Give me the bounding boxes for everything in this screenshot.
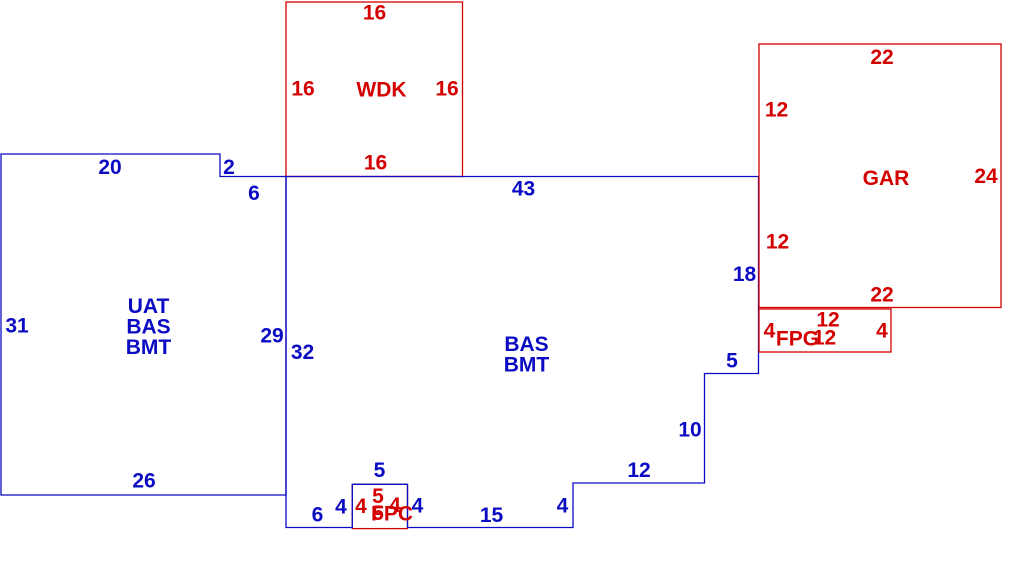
svg-text:4: 4	[557, 495, 569, 518]
svg-text:26: 26	[132, 470, 155, 493]
svg-text:22: 22	[870, 284, 893, 307]
svg-text:16: 16	[291, 78, 314, 101]
svg-text:4: 4	[876, 320, 888, 343]
svg-text:16: 16	[364, 152, 387, 175]
svg-text:BMT: BMT	[504, 354, 550, 377]
svg-text:5: 5	[726, 350, 738, 373]
svg-text:12: 12	[627, 459, 650, 482]
svg-text:15: 15	[480, 504, 504, 527]
svg-text:6: 6	[248, 182, 260, 205]
svg-text:32: 32	[291, 341, 314, 364]
svg-text:20: 20	[98, 156, 121, 179]
svg-text:29: 29	[260, 325, 283, 348]
svg-text:18: 18	[733, 263, 757, 286]
svg-text:12: 12	[765, 99, 788, 122]
svg-text:10: 10	[678, 419, 701, 442]
svg-text:16: 16	[363, 2, 386, 25]
svg-text:GAR: GAR	[863, 167, 910, 190]
svg-text:22: 22	[870, 46, 893, 69]
svg-text:43: 43	[512, 178, 535, 201]
svg-text:16: 16	[435, 78, 458, 101]
svg-text:WDK: WDK	[356, 79, 406, 102]
svg-text:24: 24	[974, 165, 998, 188]
svg-text:4: 4	[764, 320, 776, 343]
svg-text:FPC: FPC	[371, 503, 413, 526]
svg-text:5: 5	[374, 459, 386, 482]
svg-text:12: 12	[813, 327, 836, 350]
svg-text:31: 31	[5, 315, 29, 338]
svg-text:BMT: BMT	[126, 336, 172, 359]
svg-text:4: 4	[355, 495, 367, 518]
svg-text:2: 2	[223, 156, 235, 179]
svg-text:12: 12	[766, 231, 789, 254]
svg-text:4: 4	[412, 495, 424, 518]
svg-text:4: 4	[335, 496, 347, 519]
svg-text:6: 6	[312, 504, 324, 527]
